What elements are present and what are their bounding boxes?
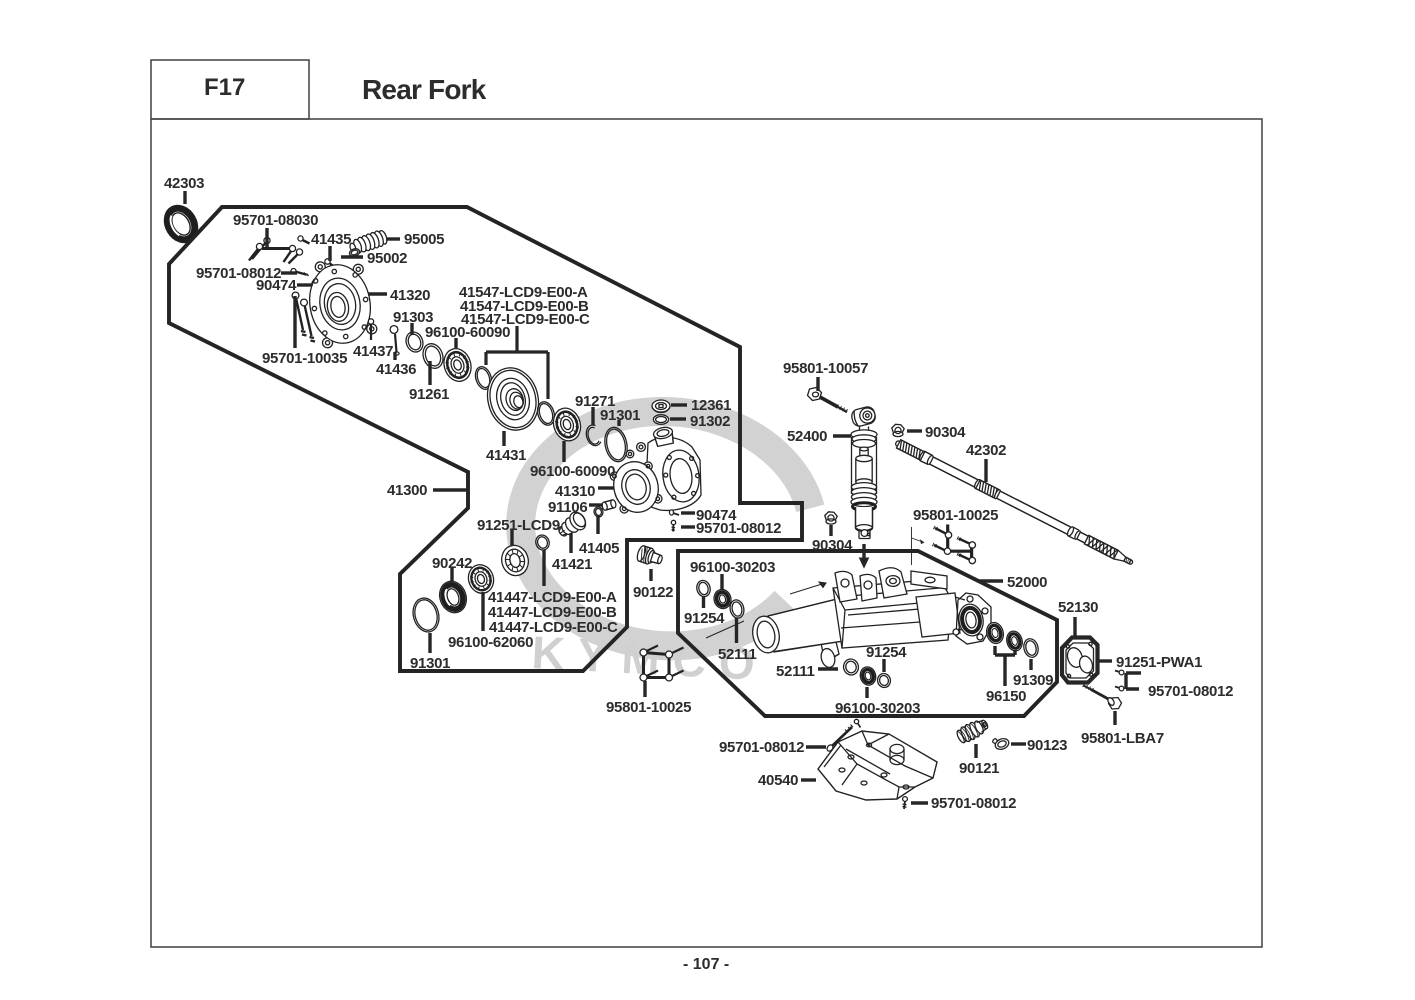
svg-text:- 107 -: - 107 - — [683, 956, 729, 973]
svg-text:95005: 95005 — [404, 231, 444, 248]
svg-text:96100-60090: 96100-60090 — [530, 463, 615, 480]
svg-text:91254: 91254 — [866, 644, 907, 661]
svg-text:41310: 41310 — [555, 483, 595, 500]
svg-text:90242: 90242 — [432, 555, 472, 572]
svg-text:91301: 91301 — [410, 655, 450, 672]
svg-text:41431: 41431 — [486, 447, 526, 464]
svg-text:95801-10025: 95801-10025 — [913, 507, 998, 524]
svg-text:Rear Fork: Rear Fork — [362, 74, 487, 105]
svg-text:41320: 41320 — [390, 287, 430, 304]
svg-text:90474: 90474 — [256, 277, 297, 294]
svg-text:41437: 41437 — [353, 343, 393, 360]
svg-text:12361: 12361 — [691, 397, 731, 414]
svg-text:41435: 41435 — [311, 231, 351, 248]
svg-text:96100-30203: 96100-30203 — [835, 700, 920, 717]
svg-text:90304: 90304 — [812, 537, 853, 554]
svg-text:91254: 91254 — [684, 610, 725, 627]
svg-text:52111: 52111 — [776, 663, 815, 680]
svg-text:90122: 90122 — [633, 584, 673, 601]
svg-text:41300: 41300 — [387, 482, 427, 499]
svg-text:95701-10035: 95701-10035 — [262, 350, 347, 367]
svg-text:91251-PWA1: 91251-PWA1 — [1116, 654, 1202, 671]
svg-text:96100-30203: 96100-30203 — [690, 559, 775, 576]
svg-text:41405: 41405 — [579, 540, 619, 557]
svg-text:91302: 91302 — [690, 413, 730, 430]
svg-text:95701-08012: 95701-08012 — [696, 520, 781, 537]
svg-text:52000: 52000 — [1007, 574, 1047, 591]
svg-text:95701-08012: 95701-08012 — [719, 739, 804, 756]
svg-text:96100-60090: 96100-60090 — [425, 324, 510, 341]
svg-text:95701-08012: 95701-08012 — [1148, 683, 1233, 700]
svg-text:42303: 42303 — [164, 175, 204, 192]
svg-text:91309: 91309 — [1013, 672, 1053, 689]
svg-text:96150: 96150 — [986, 688, 1026, 705]
svg-text:90304: 90304 — [925, 424, 966, 441]
svg-text:90123: 90123 — [1027, 737, 1067, 754]
svg-text:95801-10025: 95801-10025 — [606, 699, 691, 716]
svg-text:52400: 52400 — [787, 428, 827, 445]
svg-text:95002: 95002 — [367, 250, 407, 267]
svg-text:95801-10057: 95801-10057 — [783, 360, 868, 377]
svg-text:91301: 91301 — [600, 407, 640, 424]
svg-text:91106: 91106 — [548, 499, 587, 516]
svg-text:91251-LCD9: 91251-LCD9 — [477, 517, 560, 534]
svg-text:52111: 52111 — [718, 646, 757, 663]
svg-text:95701-08012: 95701-08012 — [931, 795, 1016, 812]
svg-text:52130: 52130 — [1058, 599, 1098, 616]
svg-text:96100-62060: 96100-62060 — [448, 634, 533, 651]
svg-text:90121: 90121 — [959, 760, 999, 777]
svg-text:42302: 42302 — [966, 442, 1006, 459]
svg-text:40540: 40540 — [758, 772, 798, 789]
svg-text:91261: 91261 — [409, 386, 449, 403]
svg-text:95801-LBA7: 95801-LBA7 — [1081, 730, 1164, 747]
svg-text:95701-08030: 95701-08030 — [233, 212, 318, 229]
svg-text:41436: 41436 — [376, 361, 416, 378]
svg-text:F17: F17 — [204, 74, 245, 101]
svg-text:41421: 41421 — [552, 556, 592, 573]
